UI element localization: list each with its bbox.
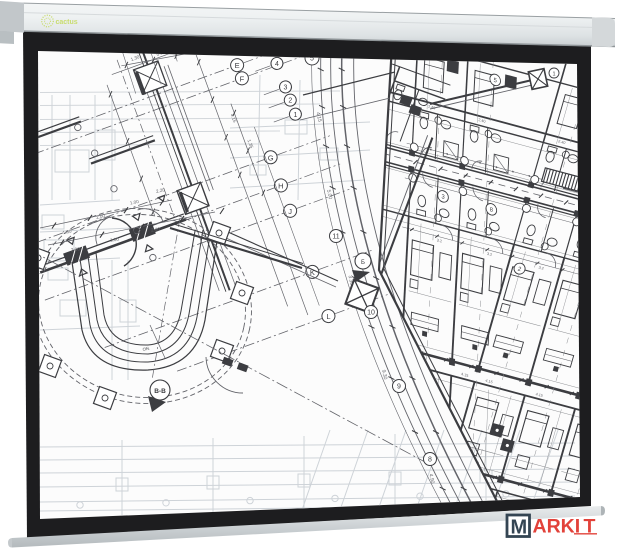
svg-text:cactus: cactus — [56, 19, 78, 26]
svg-text:9: 9 — [397, 384, 401, 391]
svg-text:G: G — [268, 153, 274, 162]
svg-text:M: M — [511, 517, 528, 539]
svg-text:1: 1 — [293, 112, 297, 119]
svg-text:ARKI: ARKI — [533, 516, 581, 538]
svg-text:J: J — [288, 207, 292, 216]
svg-text:F: F — [240, 74, 245, 83]
svg-text:E: E — [235, 61, 240, 70]
svg-text:L: L — [326, 312, 330, 321]
svg-text:B-B: B-B — [154, 388, 166, 395]
svg-text:H: H — [278, 181, 283, 190]
svg-text:10: 10 — [367, 310, 375, 317]
svg-text:Б: Б — [361, 260, 365, 266]
svg-text:2: 2 — [288, 98, 292, 105]
svg-text:1: 1 — [552, 72, 555, 78]
svg-text:4: 4 — [275, 61, 279, 68]
svg-text:11: 11 — [332, 234, 339, 241]
svg-text:8: 8 — [428, 457, 432, 464]
svg-text:3: 3 — [284, 85, 288, 92]
